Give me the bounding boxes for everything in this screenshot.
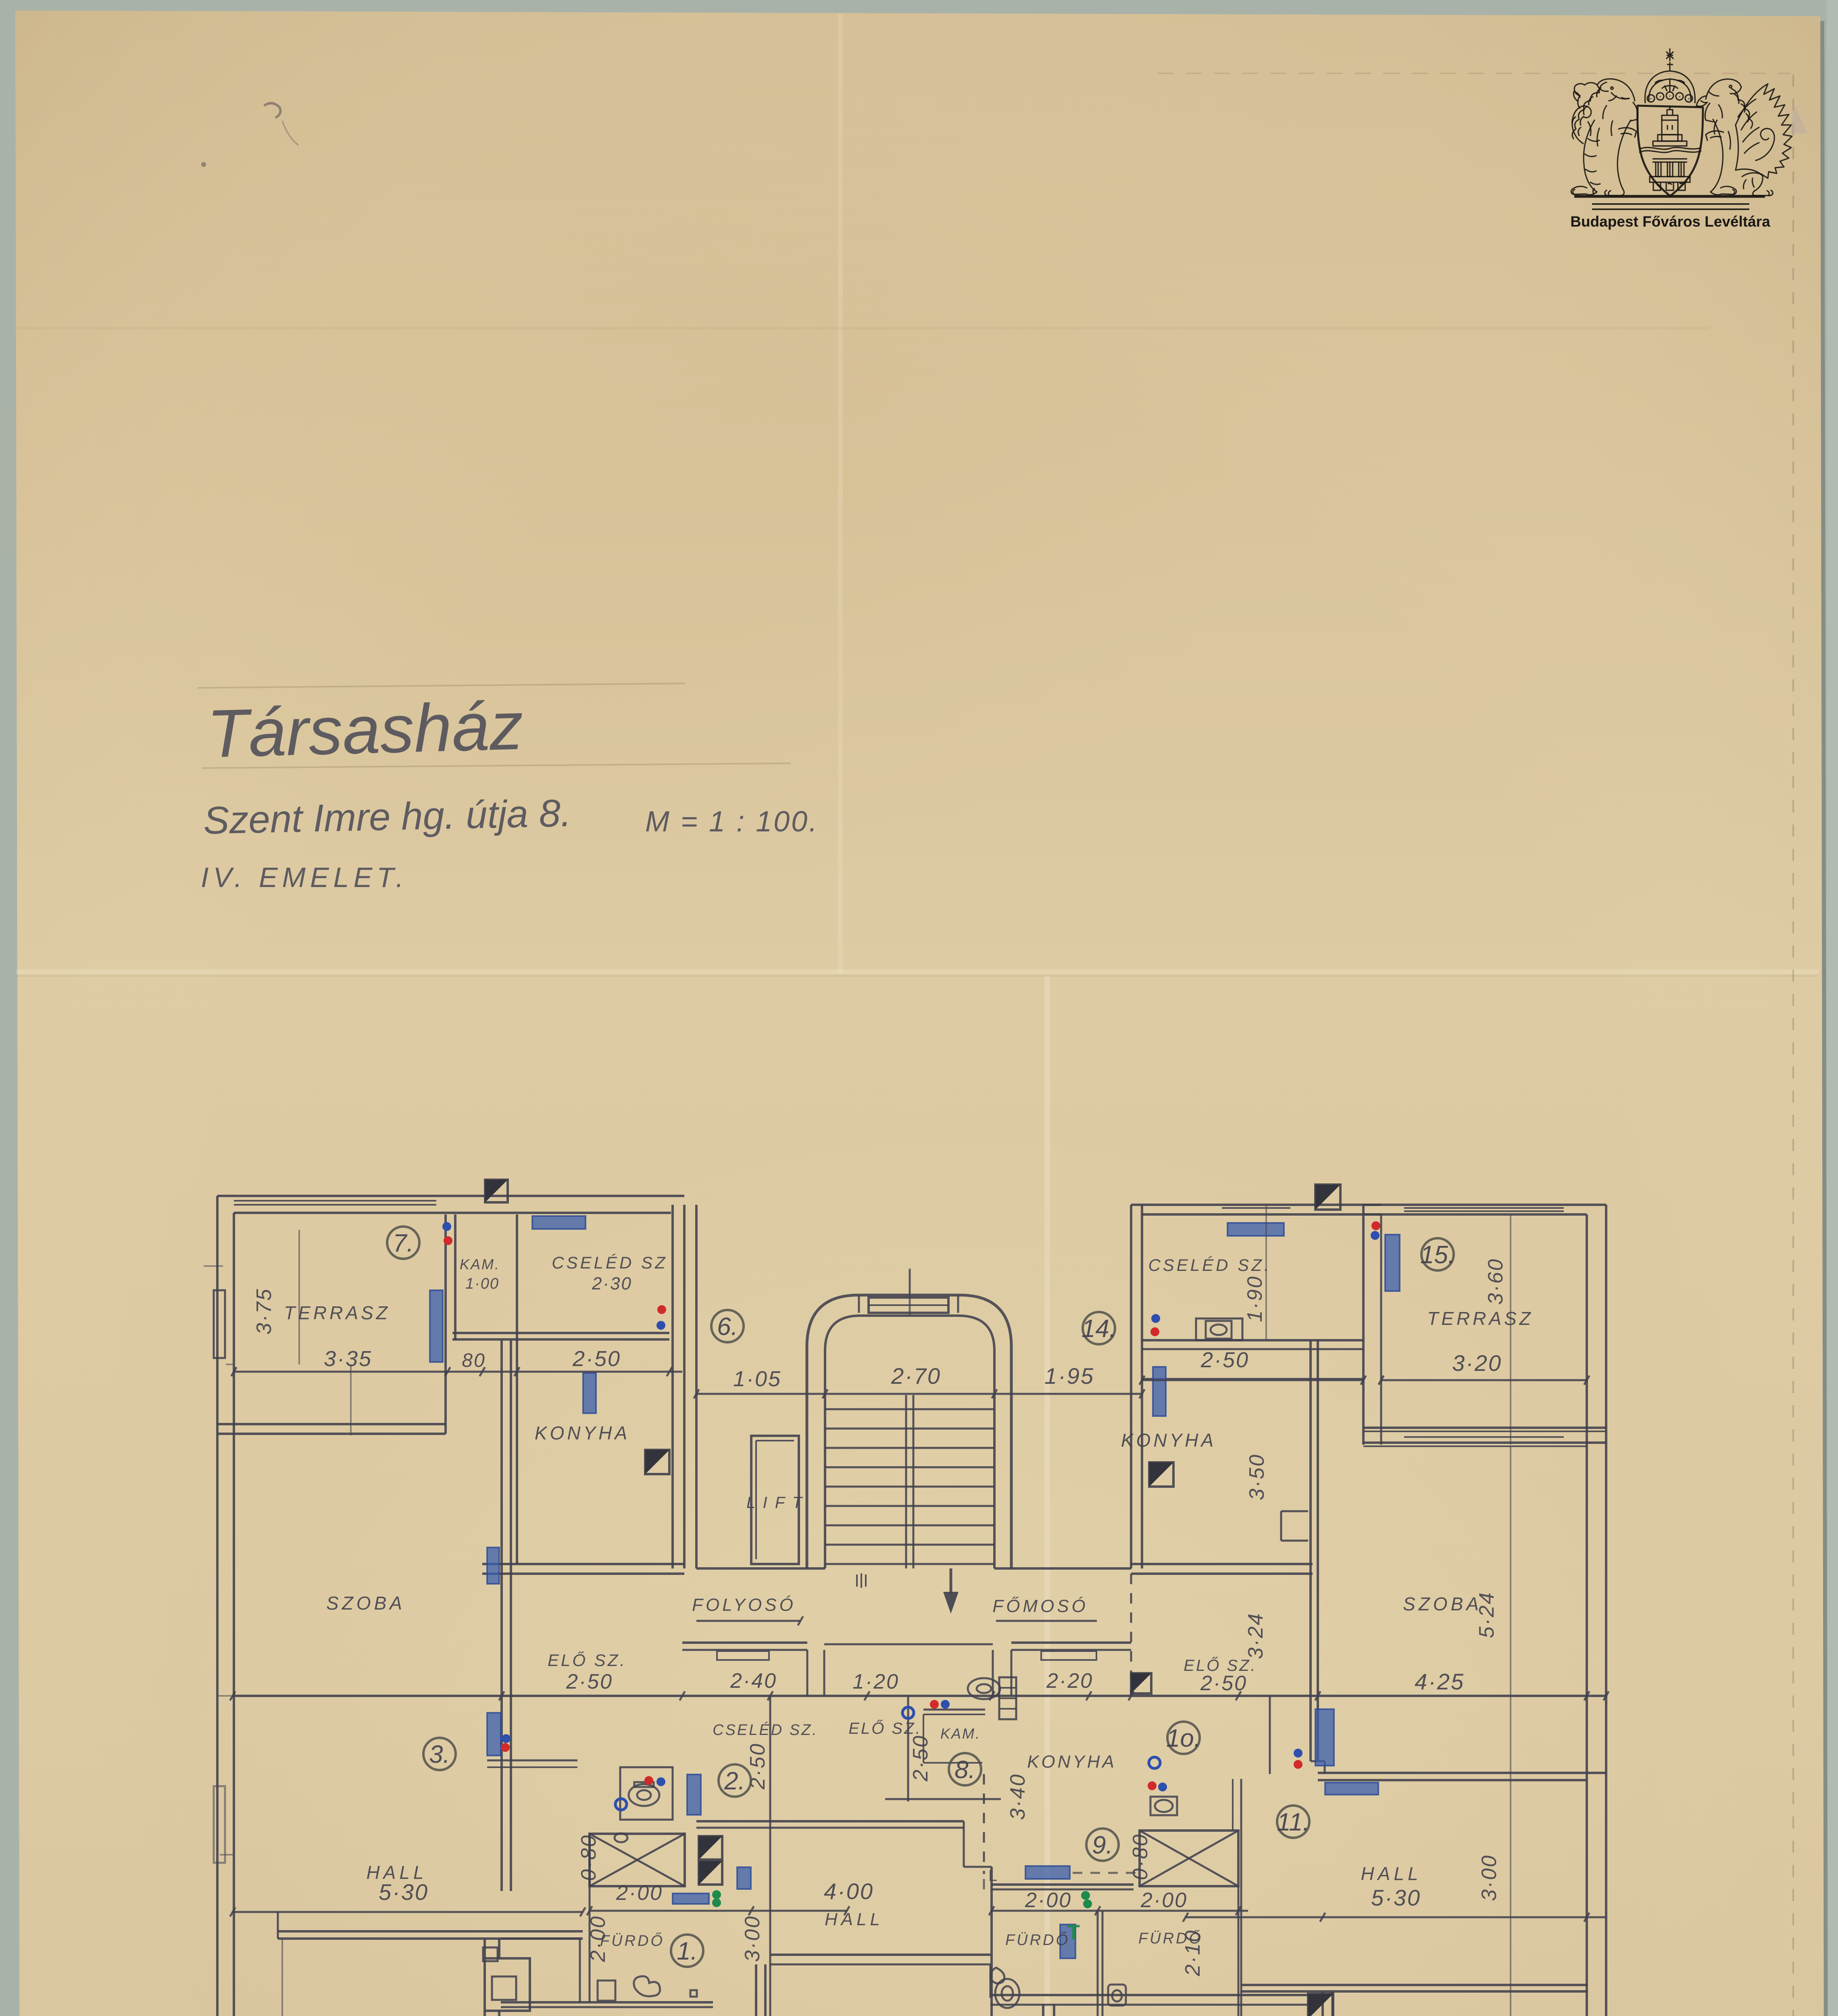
svg-text:Társasház: Társasház [206, 688, 524, 772]
svg-text:2·50: 2·50 [572, 1347, 621, 1371]
svg-text:4·00: 4·00 [824, 1879, 874, 1904]
svg-text:TERRASZ: TERRASZ [1427, 1308, 1534, 1329]
svg-text:HALL: HALL [366, 1862, 427, 1883]
svg-text:FŐMOSÓ: FŐMOSÓ [992, 1596, 1088, 1616]
svg-text:2·50: 2·50 [909, 1735, 932, 1782]
svg-text:HALL: HALL [825, 1910, 884, 1929]
svg-text:M = 1 : 100.: M = 1 : 100. [645, 806, 819, 838]
svg-text:9.: 9. [1092, 1831, 1113, 1859]
svg-text:HALL: HALL [1361, 1863, 1421, 1884]
svg-text:KONYHA: KONYHA [1027, 1752, 1117, 1772]
svg-text:1o.: 1o. [1166, 1724, 1201, 1752]
svg-text:3·50: 3·50 [1245, 1454, 1269, 1500]
svg-text:1·95: 1·95 [1044, 1363, 1094, 1389]
svg-text:CSELÉD SZ: CSELÉD SZ [552, 1253, 667, 1272]
svg-text:2·20: 2·20 [1046, 1669, 1093, 1693]
svg-text:3·35: 3·35 [324, 1347, 372, 1371]
svg-text:3·40: 3·40 [1006, 1773, 1029, 1820]
svg-text:7.: 7. [393, 1229, 414, 1257]
svg-text:0·80: 0·80 [1129, 1833, 1152, 1880]
svg-text:2·00: 2·00 [1140, 1889, 1188, 1912]
svg-text:0·80: 0·80 [577, 1834, 600, 1881]
svg-text:FÜRDŐ: FÜRDŐ [1005, 1931, 1070, 1949]
svg-text:Szent Imre hg. útja 8.: Szent Imre hg. útja 8. [203, 791, 572, 842]
svg-text:2·40: 2·40 [730, 1669, 777, 1693]
svg-text:3.: 3. [429, 1741, 450, 1768]
svg-text:IV. EMELET.: IV. EMELET. [201, 862, 408, 893]
svg-text:CSELÉD SZ.: CSELÉD SZ. [713, 1721, 818, 1739]
svg-text:ELŐ SZ.: ELŐ SZ. [1184, 1656, 1257, 1674]
svg-text:SZOBA: SZOBA [326, 1593, 405, 1614]
svg-text:2·30: 2·30 [592, 1274, 632, 1293]
svg-text:5·30: 5·30 [1371, 1885, 1421, 1910]
svg-text:8.: 8. [954, 1756, 975, 1784]
svg-text:TERRASZ: TERRASZ [284, 1302, 390, 1323]
svg-text:SZOBA: SZOBA [1403, 1593, 1482, 1614]
svg-text:KAM.: KAM. [940, 1725, 981, 1742]
svg-text:ELŐ SZ.: ELŐ SZ. [848, 1719, 921, 1737]
svg-text:11.: 11. [1277, 1808, 1310, 1836]
svg-text:3·20: 3·20 [1452, 1350, 1502, 1376]
svg-text:5·30: 5·30 [379, 1879, 429, 1905]
svg-text:KAM.: KAM. [460, 1256, 500, 1272]
svg-text:2·00: 2·00 [616, 1881, 663, 1905]
svg-text:4·25: 4·25 [1415, 1669, 1465, 1694]
svg-text:KONYHA: KONYHA [1121, 1430, 1216, 1451]
svg-text:1·20: 1·20 [852, 1670, 899, 1693]
svg-text:FOLYOSÓ: FOLYOSÓ [692, 1595, 796, 1615]
svg-text:2·00: 2·00 [1025, 1889, 1072, 1912]
svg-text:1·00: 1·00 [465, 1275, 499, 1292]
svg-text:2·50: 2·50 [1200, 1672, 1247, 1695]
svg-text:1·05: 1·05 [733, 1367, 781, 1391]
svg-text:3·60: 3·60 [1484, 1258, 1507, 1305]
svg-text:2·50: 2·50 [1200, 1348, 1249, 1372]
svg-text:2·70: 2·70 [891, 1363, 941, 1389]
svg-text:1·90: 1·90 [1243, 1275, 1267, 1322]
svg-text:3·00: 3·00 [741, 1915, 764, 1962]
svg-text:3·75: 3·75 [252, 1288, 276, 1335]
svg-text:ELŐ SZ.: ELŐ SZ. [548, 1651, 627, 1670]
svg-text:6.: 6. [717, 1313, 738, 1341]
svg-text:3·00: 3·00 [1477, 1854, 1501, 1901]
svg-text:2·50: 2·50 [566, 1670, 613, 1693]
svg-text:KONYHA: KONYHA [535, 1422, 630, 1443]
svg-text:CSELÉD SZ.: CSELÉD SZ. [1148, 1256, 1271, 1275]
svg-text:FÜRDŐ: FÜRDŐ [600, 1932, 665, 1949]
svg-text:3·24: 3·24 [1244, 1612, 1267, 1659]
svg-text:15.: 15. [1420, 1241, 1455, 1269]
svg-text:FÜRDŐ: FÜRDŐ [1138, 1930, 1203, 1947]
svg-text:Budapest Főváros Levéltára: Budapest Főváros Levéltára [1570, 213, 1770, 230]
svg-text:14.: 14. [1082, 1315, 1116, 1343]
svg-text:80: 80 [462, 1350, 486, 1371]
svg-text:L I F T: L I F T [746, 1494, 804, 1512]
svg-text:2.: 2. [724, 1767, 745, 1795]
svg-text:1.: 1. [677, 1937, 698, 1965]
